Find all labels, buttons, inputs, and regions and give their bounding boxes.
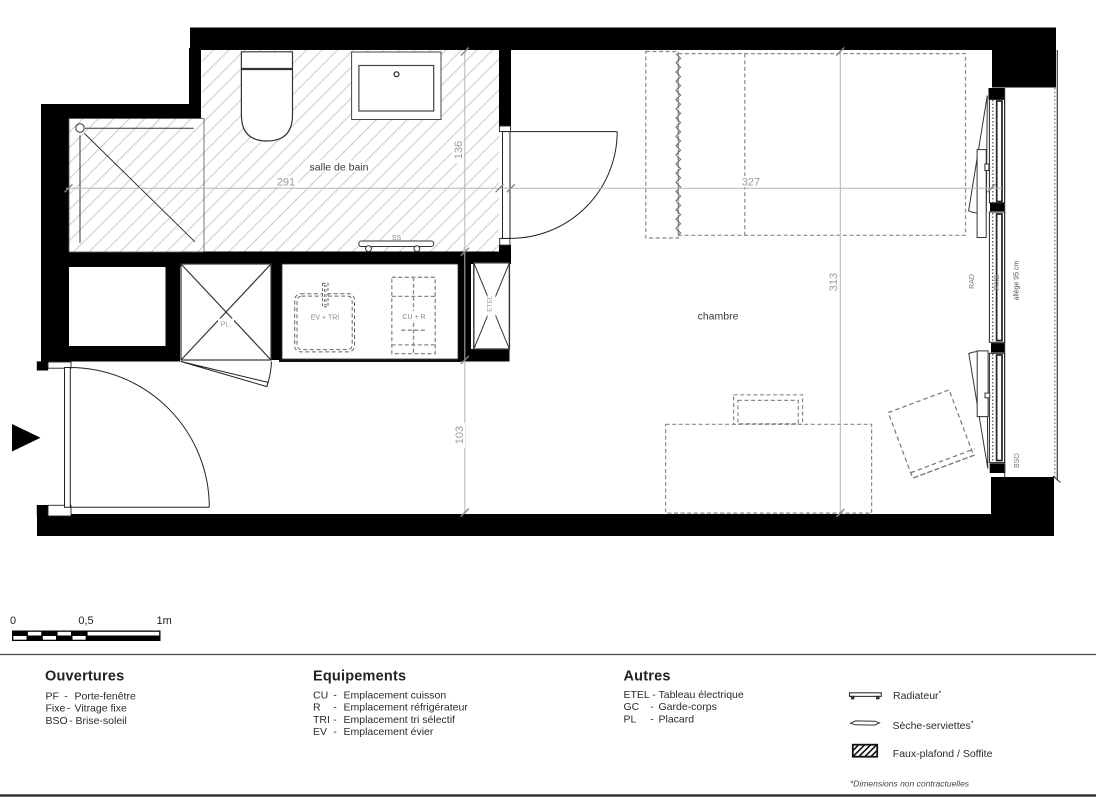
svg-text:Brise-soleil: Brise-soleil	[76, 715, 127, 727]
svg-text:CU + R: CU + R	[402, 314, 425, 321]
svg-text:-: -	[67, 703, 71, 715]
svg-text:0: 0	[10, 615, 16, 627]
svg-text:Radiateur*: Radiateur*	[893, 689, 942, 703]
svg-text:CU: CU	[313, 690, 328, 702]
svg-text:1m: 1m	[157, 615, 172, 627]
svg-text:PL: PL	[624, 713, 637, 725]
svg-text:-: -	[333, 726, 337, 738]
svg-text:-: -	[650, 713, 654, 725]
svg-text:Fixe: Fixe	[46, 703, 66, 715]
svg-text:*Dimensions non contractuelles: *Dimensions non contractuelles	[850, 779, 970, 789]
svg-text:Emplacement réfrigérateur: Emplacement réfrigérateur	[344, 702, 469, 714]
svg-text:313: 313	[828, 273, 840, 291]
svg-text:BSO: BSO	[1014, 453, 1021, 468]
svg-text:Emplacement cuisson: Emplacement cuisson	[344, 690, 447, 702]
svg-text:291: 291	[277, 177, 295, 189]
svg-text:Placard: Placard	[659, 713, 695, 725]
svg-text:-: -	[64, 691, 68, 703]
svg-text:BSO: BSO	[46, 715, 68, 727]
svg-text:Emplacement tri sélectif: Emplacement tri sélectif	[344, 714, 456, 726]
svg-text:Autres: Autres	[624, 669, 671, 685]
svg-text:allège 95 cm: allège 95 cm	[1014, 260, 1021, 300]
svg-text:-: -	[69, 715, 73, 727]
svg-text:Porte-fenêtre: Porte-fenêtre	[75, 691, 136, 703]
svg-text:136: 136	[453, 141, 465, 159]
svg-text:chambre: chambre	[698, 311, 739, 323]
svg-text:PL.: PL.	[221, 322, 232, 329]
svg-text:Garde-corps: Garde-corps	[659, 701, 717, 713]
svg-text:PF: PF	[46, 691, 59, 703]
svg-text:327: 327	[742, 177, 760, 189]
svg-text:EV: EV	[313, 726, 327, 738]
svg-text:0,5: 0,5	[78, 615, 93, 627]
svg-text:-: -	[652, 689, 656, 701]
svg-text:FIXE: FIXE	[994, 274, 1001, 290]
svg-text:GC: GC	[624, 701, 640, 713]
svg-text:salle de bain: salle de bain	[310, 162, 369, 174]
svg-text:ETEL: ETEL	[487, 295, 494, 312]
svg-text:103: 103	[454, 426, 466, 444]
svg-text:EV + TRI: EV + TRI	[311, 315, 340, 322]
svg-text:-: -	[333, 690, 337, 702]
svg-text:Tableau électrique: Tableau électrique	[659, 689, 744, 701]
svg-text:R: R	[313, 702, 321, 714]
svg-text:-: -	[333, 702, 337, 714]
svg-text:-: -	[333, 714, 337, 726]
svg-text:TRI: TRI	[313, 714, 330, 726]
svg-text:Emplacement évier: Emplacement évier	[344, 726, 434, 738]
svg-text:Vitrage fixe: Vitrage fixe	[75, 703, 127, 715]
svg-text:-: -	[650, 701, 654, 713]
svg-text:Equipements: Equipements	[313, 669, 406, 685]
svg-text:Ouvertures: Ouvertures	[45, 669, 124, 685]
svg-text:Sèche-serviettes*: Sèche-serviettes*	[893, 718, 974, 732]
svg-text:ETEL: ETEL	[624, 689, 650, 701]
svg-text:RAD: RAD	[969, 274, 976, 289]
svg-text:Faux-plafond / Soffite: Faux-plafond / Soffite	[893, 748, 993, 760]
